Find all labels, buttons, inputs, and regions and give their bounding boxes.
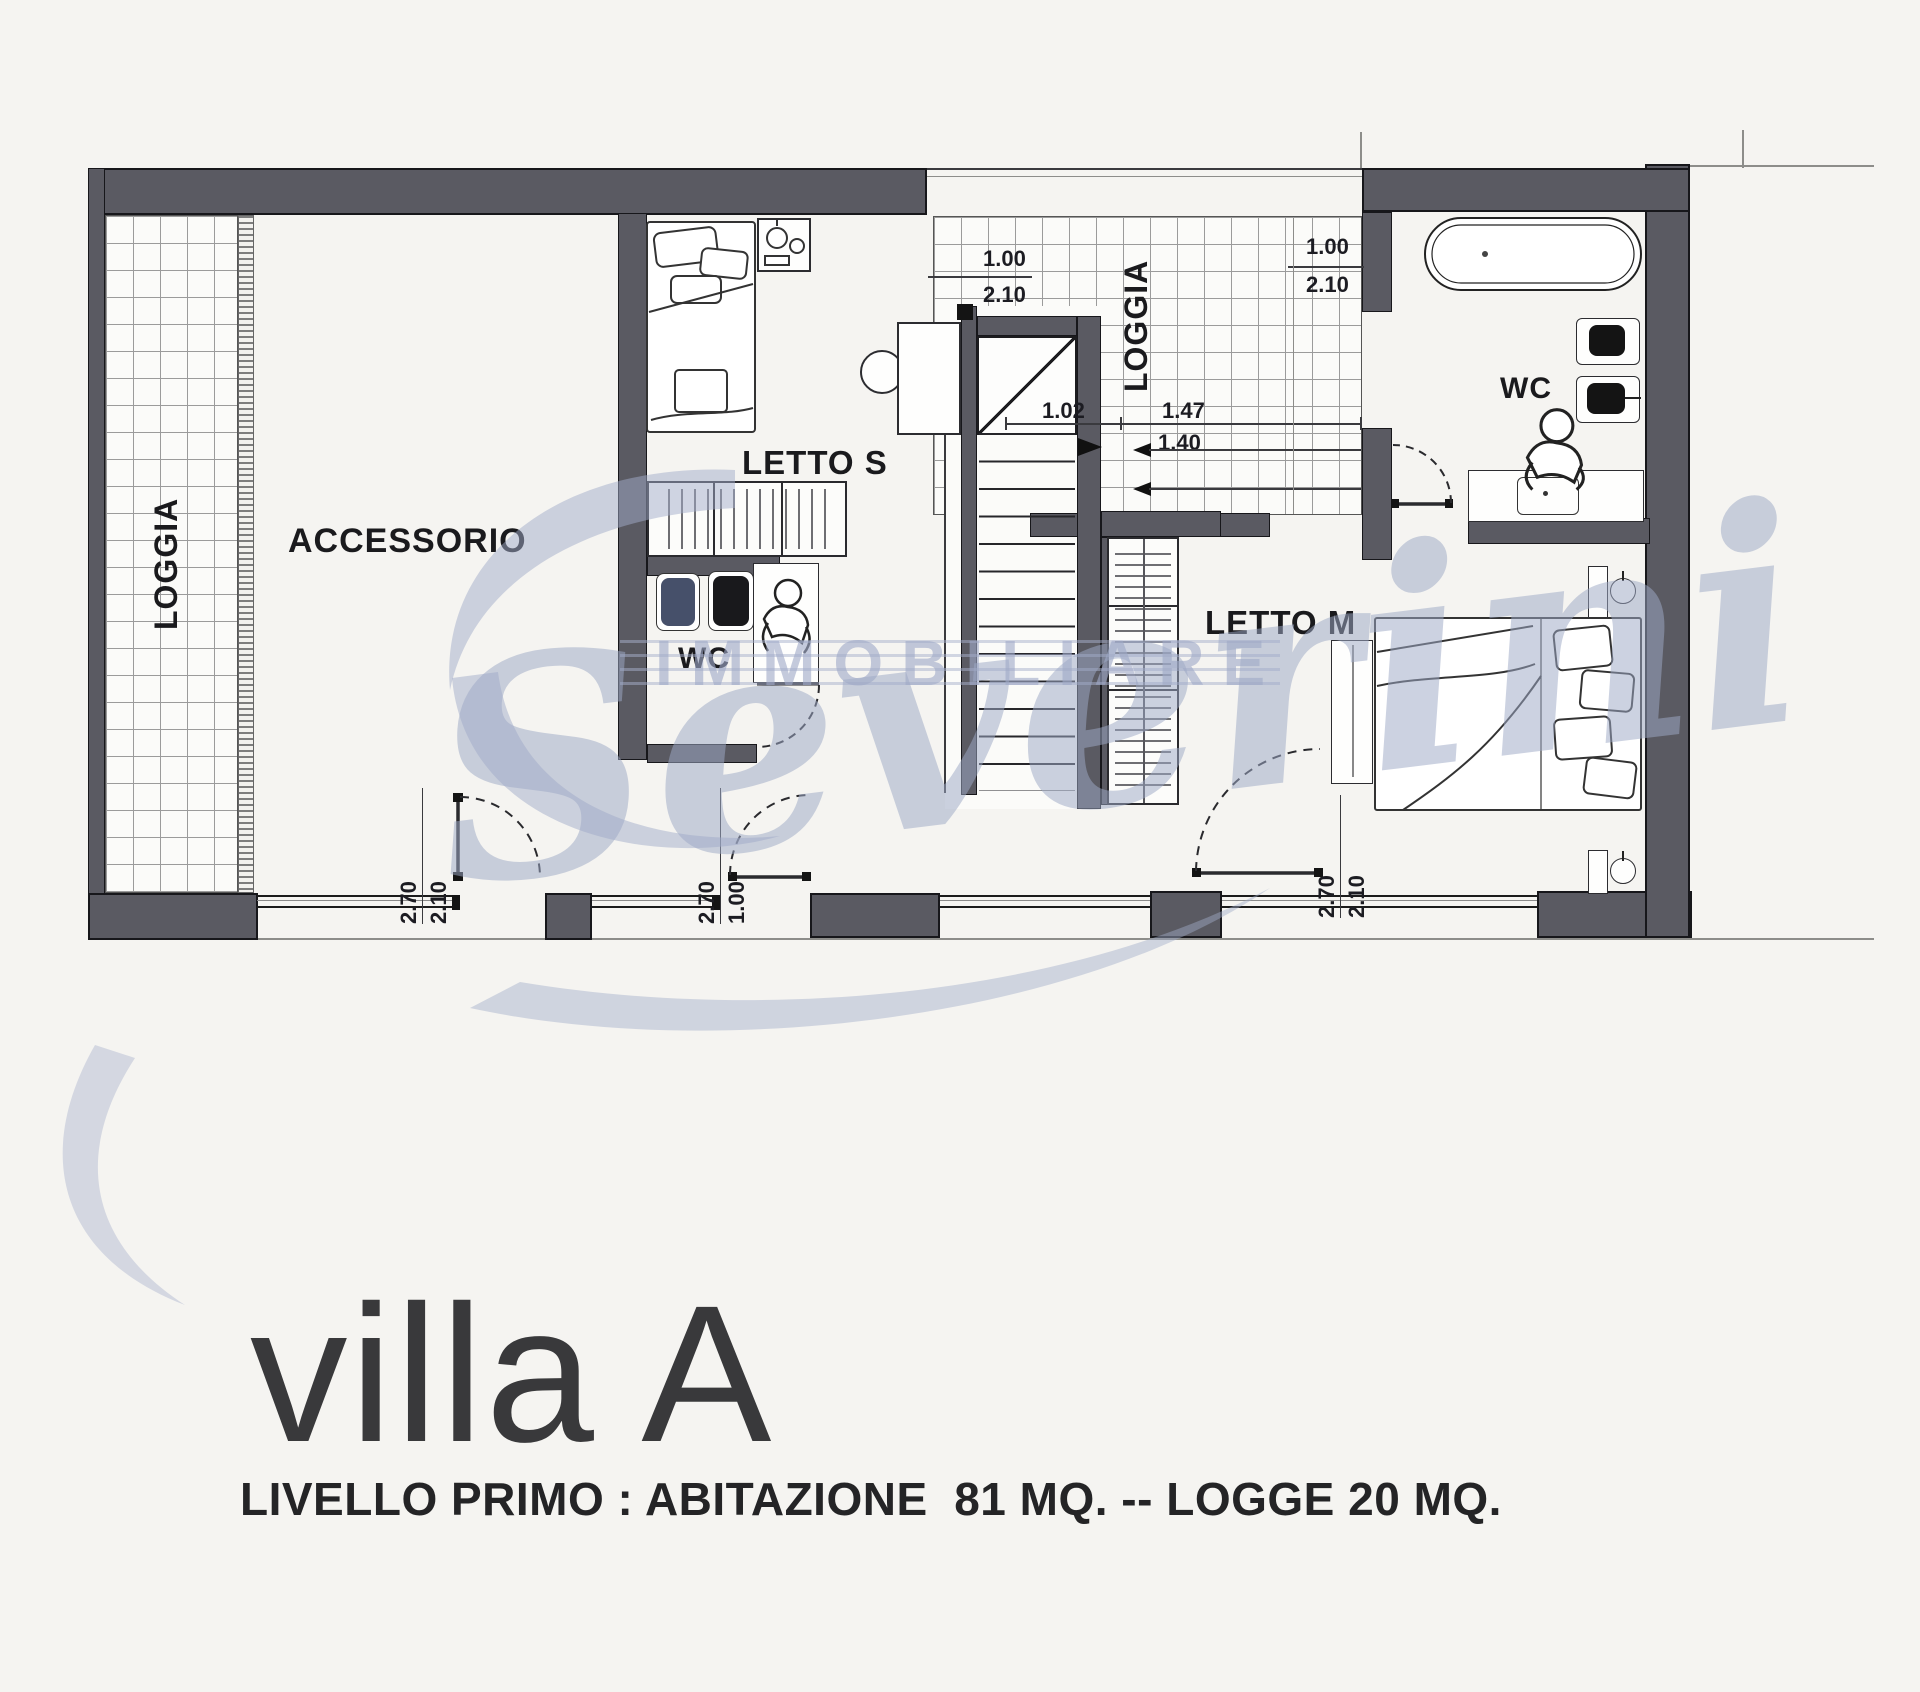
person-icon: [754, 564, 816, 678]
window-lettom: [1222, 895, 1537, 908]
wall-wcr-left-lower: [1362, 428, 1392, 560]
dim-stair-door-w: 1.00: [983, 246, 1026, 272]
room-label-wc-mid: WC: [678, 642, 730, 676]
wall-stair-right: [1077, 316, 1101, 809]
wall-pier-b: [810, 893, 940, 938]
stair-banister: [944, 433, 946, 793]
dim-loggia-clear: 1.40: [1158, 430, 1201, 456]
dim-line: [1149, 488, 1361, 490]
dim-line: [1149, 449, 1361, 451]
door-arc: [753, 681, 825, 753]
room-label-accessorio: ACCESSORIO: [288, 522, 527, 561]
radiator-valve-icon: [1610, 578, 1636, 604]
dim-line: [1005, 423, 1362, 425]
door-arc: [728, 793, 816, 881]
dim-bottom-mid-a: 2.70: [694, 881, 720, 924]
dim-ext-line: [720, 788, 721, 924]
dim-bottom-mid-b: 1.00: [724, 881, 750, 924]
wall-bottom-left-block: [88, 893, 258, 940]
single-bed-icon: [645, 220, 757, 434]
dim-loggia-b: 1.47: [1162, 398, 1205, 424]
dim-wcr-door-w: 1.00: [1306, 234, 1349, 260]
door-jamb-1: [452, 895, 460, 910]
room-label-letto-s: LETTO S: [742, 444, 888, 482]
wall-wcm-bottom: [647, 744, 757, 763]
radiator-icon: [1588, 566, 1608, 618]
room-label-letto-m: LETTO M: [1205, 604, 1356, 642]
toilet-icon: [1576, 318, 1640, 365]
desk-icon: [897, 322, 961, 435]
site-line-right: [1690, 165, 1874, 167]
ground-line: [88, 938, 1874, 940]
dim-bottom-left-a: 2.70: [396, 881, 422, 924]
dim-tick: [1005, 417, 1007, 430]
wall-pier-c: [1150, 891, 1222, 938]
wall-accessorio: [618, 213, 647, 760]
bench-icon: [1331, 640, 1373, 784]
parapet-line2: [927, 176, 1362, 177]
dim-tick: [1360, 417, 1362, 430]
dim-tick: [1120, 417, 1122, 430]
dim-bottom-right-b: 2.10: [1344, 875, 1370, 918]
wall-stair-top: [977, 316, 1077, 336]
radiator-valve-icon: [1610, 858, 1636, 884]
dim-ext-line: [422, 788, 423, 924]
wall-top-right: [1362, 168, 1690, 212]
stair-door-jamb: [957, 304, 973, 320]
dim-wcr-door-h: 2.10: [1306, 272, 1349, 298]
page-title: villa A: [250, 1262, 773, 1486]
wall-left: [88, 168, 105, 940]
door-arc: [1391, 438, 1465, 512]
ext-tick-a: [1360, 132, 1362, 168]
room-label-wc-right: WC: [1500, 372, 1552, 406]
wall-closet-top: [1101, 511, 1221, 537]
wall-wcr-left-upper: [1362, 212, 1392, 312]
bathtub-icon: [1423, 216, 1643, 292]
ext-tick-b: [1742, 130, 1744, 168]
wall-pier-a: [545, 893, 592, 940]
page-subtitle: LIVELLO PRIMO : ABITAZIONE 81 MQ. -- LOG…: [240, 1472, 1502, 1526]
sink-icon: [708, 571, 754, 631]
door-arc: [453, 793, 545, 881]
radiator-icon: [1588, 850, 1608, 894]
window-stairhall: [940, 895, 1150, 908]
stair-direction-arrow-icon: [1078, 438, 1102, 456]
person-icon: [1512, 406, 1592, 492]
loggia-glazing: [238, 215, 254, 893]
shower-icon: [753, 563, 819, 683]
floor-plan: LOGGIA LOGGIA ACCESSORIO LETTO S WC WC L…: [0, 0, 1920, 1060]
wall-stair-left: [961, 306, 977, 795]
door-arc: [1068, 743, 1324, 879]
wall-top-left: [88, 168, 927, 215]
dim-loggia-a: 1.02: [1042, 398, 1085, 424]
double-bed-icon: [1373, 616, 1643, 812]
wall-right: [1645, 164, 1690, 938]
dim-ext-line: [1340, 795, 1341, 918]
dim-line: [928, 276, 1032, 278]
dim-stair-door-h: 2.10: [983, 282, 1026, 308]
parapet-line: [927, 168, 1362, 170]
stair-treads: [979, 433, 1075, 791]
dim-bottom-left-b: 2.10: [426, 881, 452, 924]
dim-bottom-right-a: 2.70: [1314, 875, 1340, 918]
dim-line: [1288, 266, 1364, 268]
dim-ext-line: [1293, 218, 1294, 514]
sink-icon: [656, 573, 700, 631]
wardrobe-letto-s-icon: [647, 481, 847, 557]
nightstand-icon: [757, 218, 811, 272]
